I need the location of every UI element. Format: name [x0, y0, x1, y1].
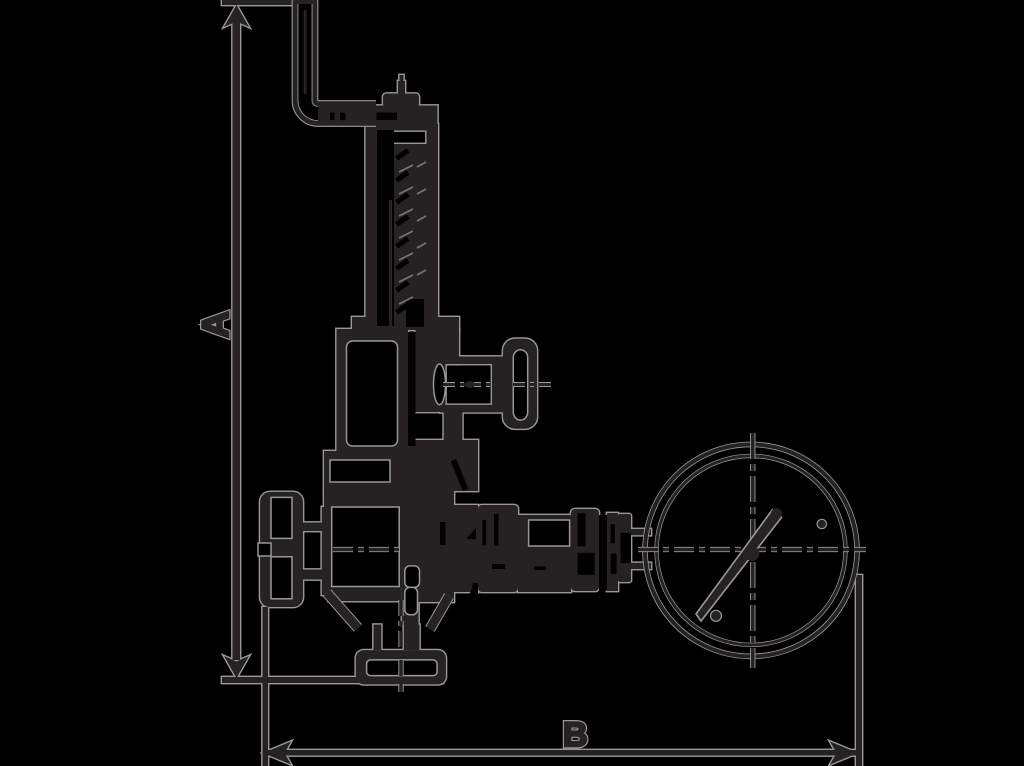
svg-text:B: B	[563, 716, 588, 754]
svg-text:A: A	[195, 311, 236, 338]
